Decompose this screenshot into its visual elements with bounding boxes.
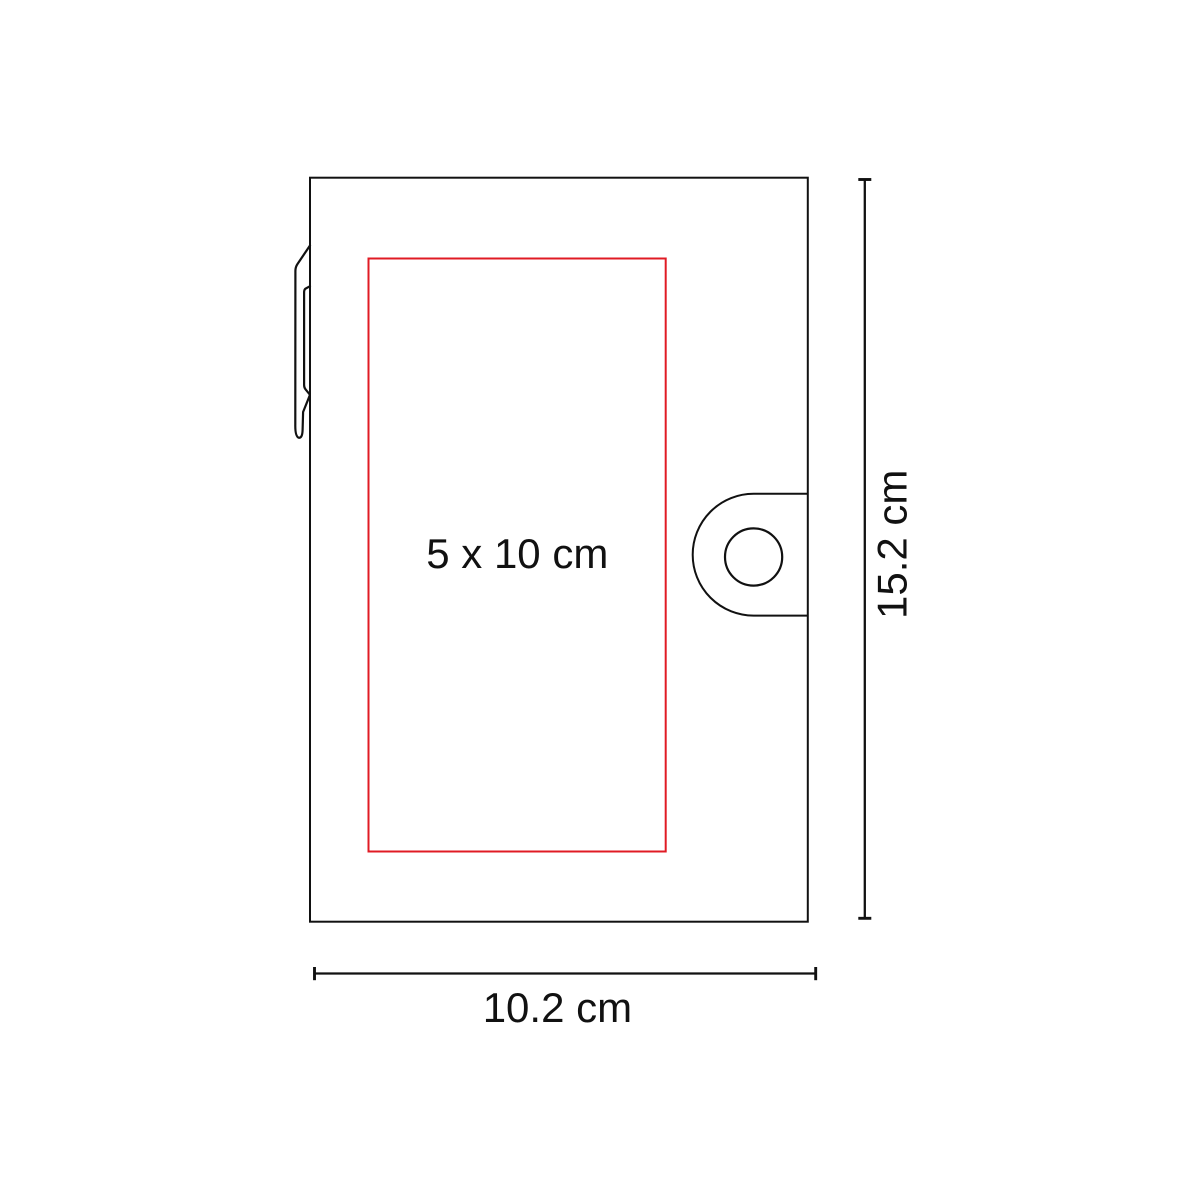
svg-text:10.2 cm: 10.2 cm xyxy=(483,984,632,1031)
svg-text:5 x 10 cm: 5 x 10 cm xyxy=(426,530,608,577)
svg-text:15.2 cm: 15.2 cm xyxy=(869,470,916,619)
